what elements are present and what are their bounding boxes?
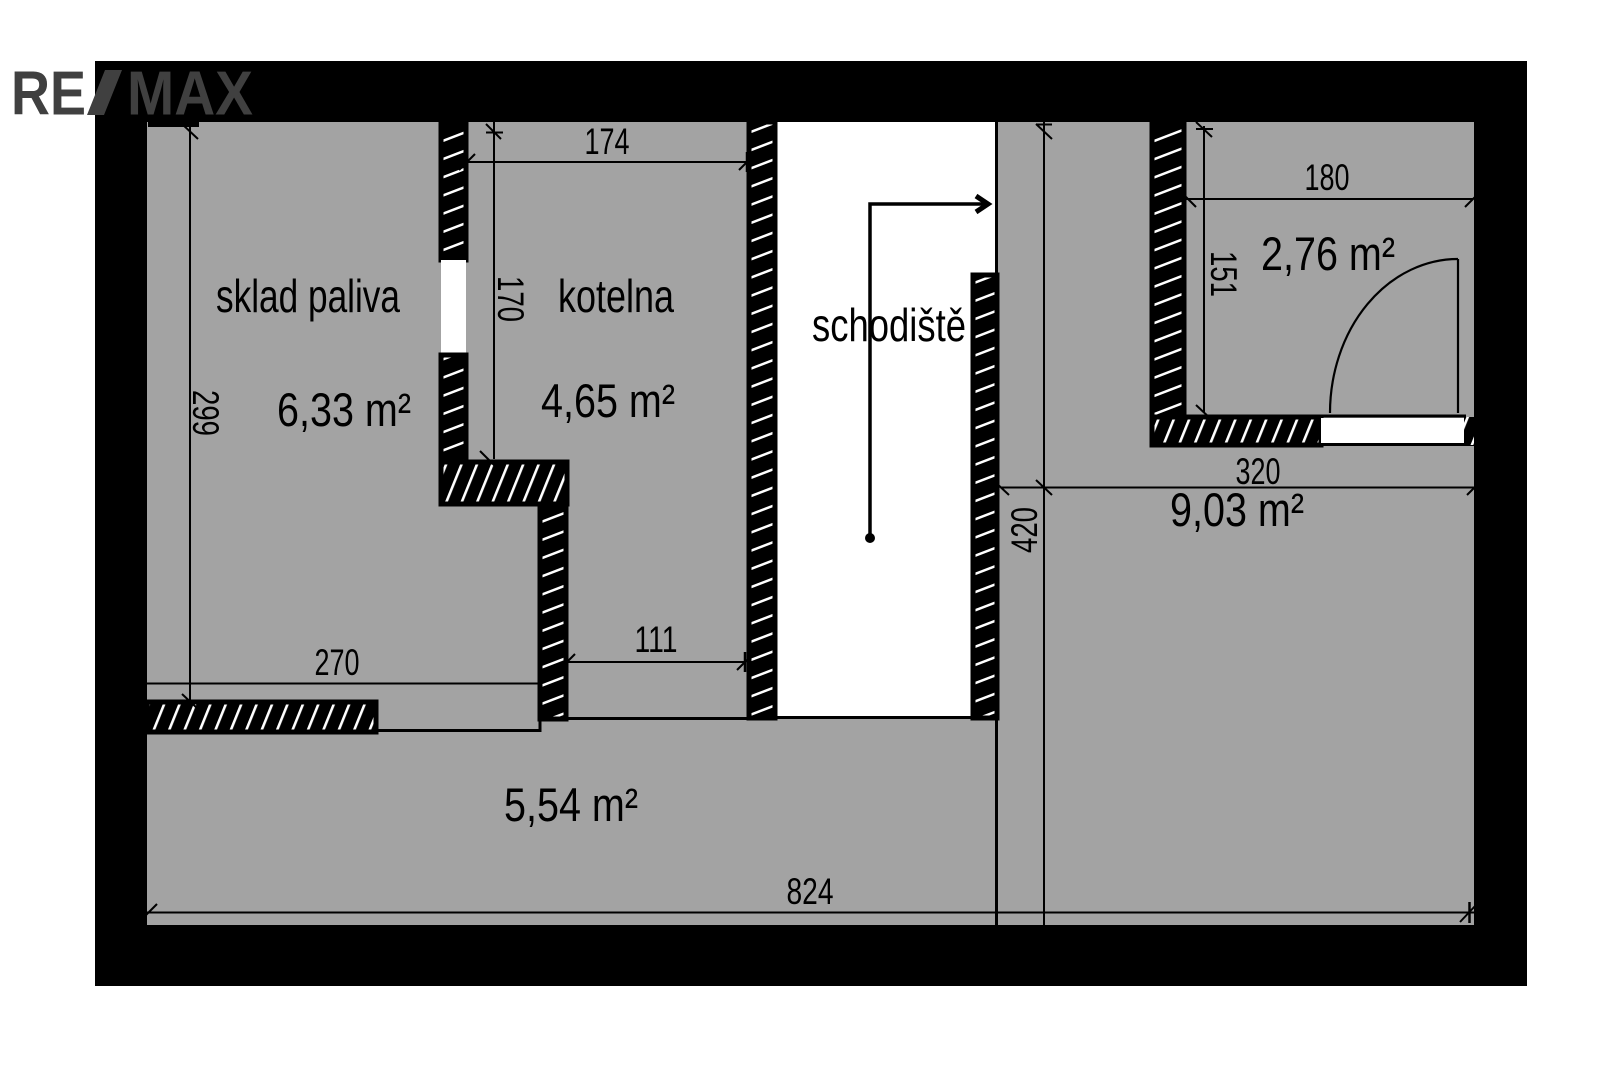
svg-text:RE: RE — [11, 60, 86, 129]
svg-text:170: 170 — [490, 276, 531, 322]
svg-text:kotelna: kotelna — [558, 270, 674, 322]
svg-text:MAX: MAX — [127, 60, 253, 129]
svg-text:299: 299 — [185, 390, 226, 436]
svg-text:2,76 m²: 2,76 m² — [1261, 227, 1395, 280]
svg-text:sklad paliva: sklad paliva — [216, 270, 400, 322]
svg-text:180: 180 — [1305, 157, 1350, 198]
svg-text:6,33 m²: 6,33 m² — [277, 383, 411, 436]
svg-text:174: 174 — [585, 121, 630, 162]
svg-text:4,65 m²: 4,65 m² — [541, 374, 675, 427]
svg-text:9,03 m²: 9,03 m² — [1170, 483, 1304, 536]
svg-text:schodiště: schodiště — [812, 299, 966, 351]
svg-text:270: 270 — [315, 642, 360, 683]
svg-text:151: 151 — [1203, 251, 1244, 297]
svg-text:111: 111 — [635, 619, 678, 660]
svg-text:824: 824 — [787, 871, 834, 912]
svg-text:420: 420 — [1004, 507, 1045, 553]
svg-text:5,54 m²: 5,54 m² — [504, 778, 638, 831]
